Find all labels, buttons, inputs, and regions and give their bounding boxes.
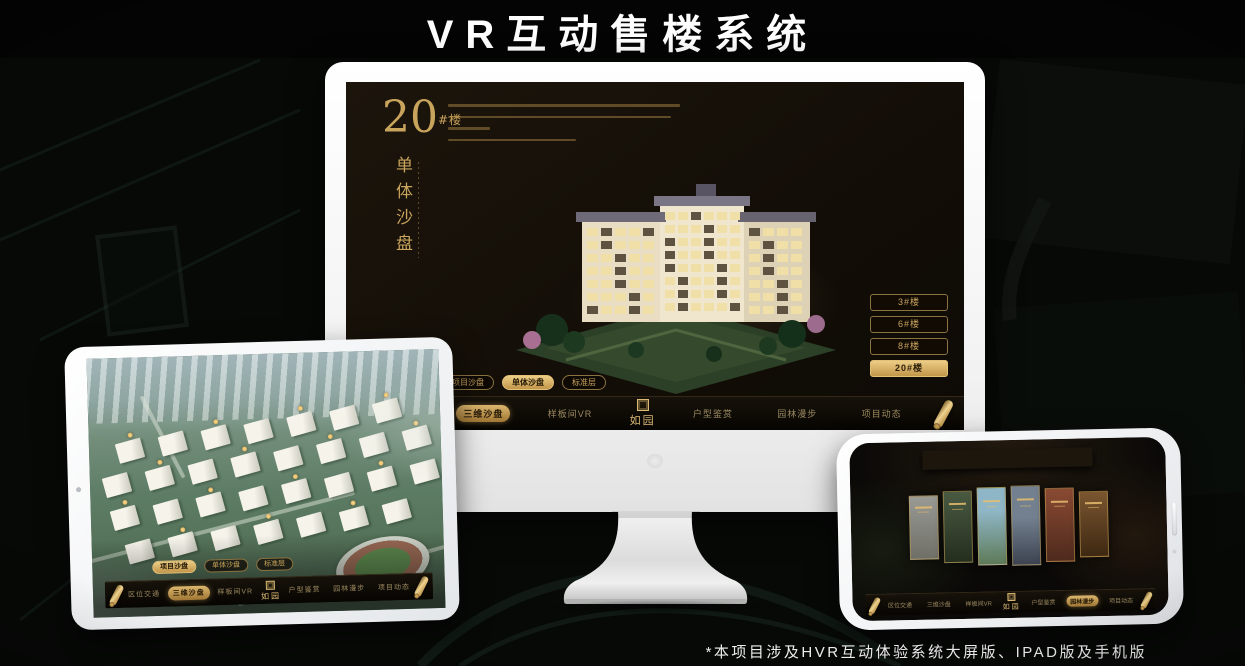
brand-logo: 如园	[1002, 593, 1020, 612]
gallery-panel[interactable]	[943, 491, 974, 564]
monitor-stand	[540, 511, 770, 612]
stand-shadow	[552, 600, 762, 614]
subtab-standard-floor[interactable]: 标准层	[562, 375, 606, 390]
brand-seal-icon	[266, 580, 275, 589]
building-button-3[interactable]: 3#楼	[870, 294, 948, 311]
subtab-single-sandtable[interactable]: 单体沙盘	[502, 375, 554, 390]
poster-canvas: VR互动售楼系统 20#楼 单体沙盘	[0, 0, 1245, 666]
gallery-panel[interactable]	[1079, 491, 1109, 558]
scroll-icon[interactable]	[1140, 590, 1153, 609]
brand-seal-icon	[1007, 593, 1015, 601]
monitor-sub-tabs: 项目沙盘 单体沙盘 标准层	[442, 375, 606, 390]
section-heading: 单体沙盘	[390, 156, 415, 260]
nav-item-project-news[interactable]: 项目动态	[855, 405, 909, 422]
building-selector: 3#楼 6#楼 8#楼 20#楼	[870, 294, 948, 377]
nav-item-location[interactable]: 区位交通	[123, 587, 165, 602]
monitor-chin-logo	[647, 454, 663, 468]
scroll-icon[interactable]	[413, 575, 429, 598]
brand-seal-icon	[637, 399, 649, 411]
gallery-panel[interactable]	[1011, 485, 1042, 566]
tablet-camera-icon	[76, 487, 81, 492]
brand-logo: 如园	[261, 580, 282, 602]
nav-item-3d-sandtable[interactable]: 三维沙盘	[168, 586, 210, 601]
brand-logo: 如园	[630, 399, 656, 428]
building-render	[486, 154, 866, 400]
phone-bottom-navbar: 区位交通 三维沙盘 样板间VR 如园 户型鉴赏 园林漫步 项目动态	[865, 588, 1156, 616]
tablet-device: 项目沙盘 单体沙盘 标准层 区位交通 三维沙盘 样板间VR 如园 户型鉴赏 园林…	[64, 337, 460, 631]
brand-name: 如园	[261, 590, 281, 602]
page-title: VR互动售楼系统	[0, 2, 1245, 60]
nav-item-unit-plans[interactable]: 户型鉴赏	[1027, 596, 1059, 608]
nav-item-location[interactable]: 区位交通	[884, 599, 916, 611]
nav-item-showroom-vr[interactable]: 样板间VR	[961, 597, 996, 609]
scroll-icon[interactable]	[932, 398, 954, 429]
nav-item-project-news[interactable]: 项目动态	[1105, 594, 1137, 606]
gallery-panel[interactable]	[977, 487, 1008, 566]
subtab-project-sandtable[interactable]: 项目沙盘	[152, 560, 196, 574]
tablet-screen: 项目沙盘 单体沙盘 标准层 区位交通 三维沙盘 样板间VR 如园 户型鉴赏 园林…	[86, 349, 445, 618]
building-button-6[interactable]: 6#楼	[870, 316, 948, 333]
nav-item-showroom-vr[interactable]: 样板间VR	[212, 584, 258, 599]
nav-item-3d-sandtable[interactable]: 三维沙盘	[456, 405, 510, 422]
nav-item-3d-sandtable[interactable]: 三维沙盘	[923, 598, 955, 610]
gallery-panels	[909, 484, 1110, 568]
nav-item-unit-plans[interactable]: 户型鉴赏	[686, 405, 740, 422]
heading-divider	[418, 162, 419, 258]
gallery-panel[interactable]	[1045, 487, 1076, 562]
scroll-icon[interactable]	[867, 596, 880, 615]
subtab-standard-floor[interactable]: 标准层	[256, 557, 293, 571]
gallery-panel[interactable]	[909, 495, 939, 560]
nav-item-garden-walk[interactable]: 园林漫步	[1066, 595, 1098, 607]
phone-device: 区位交通 三维沙盘 样板间VR 如园 户型鉴赏 园林漫步 项目动态	[836, 427, 1184, 630]
footnote: *本项目涉及HVR互动体验系统大屏版、IPAD版及手机版	[706, 641, 1147, 662]
description-paragraph	[448, 104, 680, 150]
floor-number: 20	[382, 92, 438, 143]
phone-side-button	[1171, 502, 1177, 536]
nav-item-garden-walk[interactable]: 园林漫步	[328, 581, 370, 596]
building-button-8[interactable]: 8#楼	[870, 338, 948, 355]
nav-item-project-news[interactable]: 项目动态	[373, 580, 415, 595]
phone-camera-icon	[1172, 549, 1176, 553]
phone-screen: 区位交通 三维沙盘 样板间VR 如园 户型鉴赏 园林漫步 项目动态	[849, 437, 1169, 622]
nav-item-unit-plans[interactable]: 户型鉴赏	[283, 582, 325, 597]
subtab-single-sandtable[interactable]: 单体沙盘	[204, 558, 248, 572]
building-button-20[interactable]: 20#楼	[870, 360, 948, 377]
nav-item-showroom-vr[interactable]: 样板间VR	[541, 405, 600, 422]
gate-silhouette	[922, 447, 1093, 470]
brand-name: 如园	[1003, 602, 1021, 612]
brand-name: 如园	[630, 412, 656, 428]
nav-item-garden-walk[interactable]: 园林漫步	[770, 405, 824, 422]
